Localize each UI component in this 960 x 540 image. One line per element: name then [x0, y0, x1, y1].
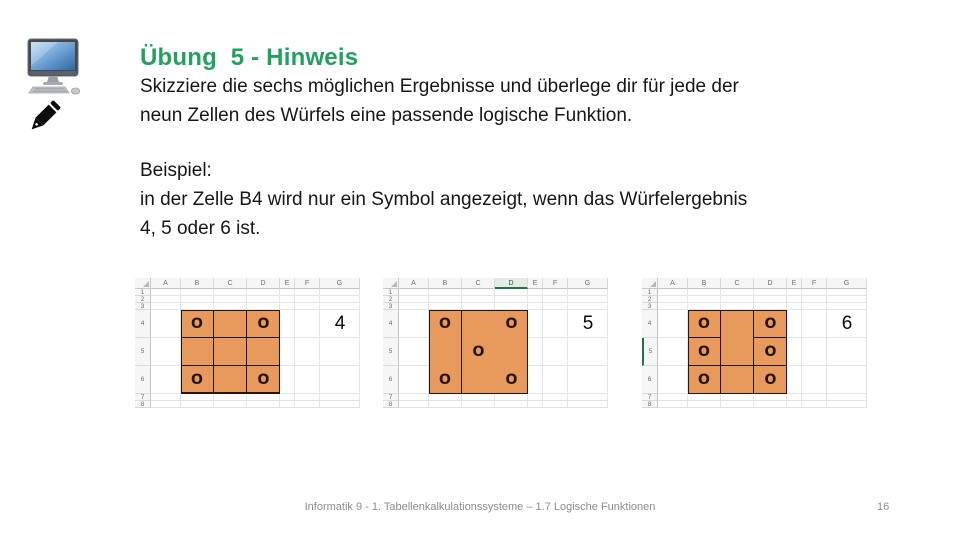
cell-B3: [429, 303, 462, 310]
row-header-3: 3: [383, 303, 399, 310]
row-header-8: 8: [135, 401, 151, 408]
select-all-corner: [135, 278, 151, 289]
cell-G2: [568, 296, 608, 303]
cell-F3: [802, 303, 827, 310]
dice-block: OOOO: [181, 310, 280, 394]
cell-F2: [295, 296, 320, 303]
cell-B2: [429, 296, 462, 303]
cell-D3: [247, 303, 280, 310]
column-header-F: F: [543, 278, 568, 289]
column-header-D: D: [754, 278, 787, 289]
dice-cell-C6: [214, 366, 247, 394]
spreadsheet-image-dice-4: ABCDEFG12345678OOOO4: [135, 278, 360, 408]
cell-C2: [721, 296, 754, 303]
row-header-4: 4: [383, 310, 399, 338]
cell-F8: [543, 401, 568, 408]
row-header-8: 8: [383, 401, 399, 408]
cell-D3: [495, 303, 528, 310]
column-header-D: D: [495, 278, 528, 289]
cell-B2: [181, 296, 214, 303]
cell-D1: [247, 289, 280, 296]
dice-cell-B6: O: [688, 366, 721, 394]
cell-E4: [787, 310, 802, 338]
cell-D8: [495, 401, 528, 408]
dice-cell-C5: [721, 338, 754, 366]
intro-line: Skizziere die sechs möglichen Ergebnisse…: [140, 72, 739, 101]
cell-C8: [214, 401, 247, 408]
cell-A4: [658, 310, 688, 338]
cell-F4: [295, 310, 320, 338]
cell-E7: [528, 394, 543, 401]
cell-A5: [151, 338, 181, 366]
spreadsheet-image-dice-5: ABCDEFG12345678OOOOO5: [383, 278, 608, 408]
cell-G1: [320, 289, 360, 296]
cell-A4: [151, 310, 181, 338]
cell-E3: [280, 303, 295, 310]
dice-cell-B5: O: [688, 338, 721, 366]
cell-G2: [320, 296, 360, 303]
cell-A3: [399, 303, 429, 310]
cell-G2: [827, 296, 867, 303]
dice-cell-D5: [495, 338, 528, 366]
cell-D7: [247, 394, 280, 401]
page-title: Übung 5 - Hinweis: [140, 44, 358, 72]
cell-E5: [787, 338, 802, 366]
cell-B3: [688, 303, 721, 310]
row-header-6: 6: [135, 366, 151, 394]
dice-cell-C6: [721, 366, 754, 394]
computer-icon: [20, 38, 84, 101]
dice-cell-B5: [429, 338, 462, 366]
cell-C3: [462, 303, 495, 310]
cell-C1: [721, 289, 754, 296]
cell-G7: [320, 394, 360, 401]
cell-B7: [688, 394, 721, 401]
cell-G5: [320, 338, 360, 366]
cell-A2: [399, 296, 429, 303]
result-number-4: 4: [320, 310, 360, 338]
dice-cell-C5: [214, 338, 247, 366]
cell-F1: [802, 289, 827, 296]
column-header-F: F: [295, 278, 320, 289]
cell-C1: [214, 289, 247, 296]
cell-F1: [543, 289, 568, 296]
cell-G5: [568, 338, 608, 366]
example-text: Beispiel:in der Zelle B4 wird nur ein Sy…: [140, 156, 747, 243]
cell-B1: [429, 289, 462, 296]
cell-E5: [280, 338, 295, 366]
intro-text: Skizziere die sechs möglichen Ergebnisse…: [140, 72, 739, 130]
dice-cell-B4: O: [181, 310, 214, 338]
cell-A7: [658, 394, 688, 401]
column-header-A: A: [658, 278, 688, 289]
cell-G5: [827, 338, 867, 366]
cell-B3: [181, 303, 214, 310]
cell-G8: [568, 401, 608, 408]
cell-A1: [658, 289, 688, 296]
cell-A6: [658, 366, 688, 394]
result-number-5: 5: [568, 310, 608, 338]
column-header-C: C: [214, 278, 247, 289]
row-header-4: 4: [642, 310, 658, 338]
cell-D2: [247, 296, 280, 303]
cell-B1: [181, 289, 214, 296]
column-header-A: A: [399, 278, 429, 289]
column-header-G: G: [827, 278, 867, 289]
cell-E2: [787, 296, 802, 303]
page-number: 16: [877, 501, 889, 513]
cell-E2: [528, 296, 543, 303]
cell-D2: [495, 296, 528, 303]
cell-F8: [295, 401, 320, 408]
cell-D8: [247, 401, 280, 408]
pen-icon-graphic: [22, 96, 66, 140]
cell-C2: [214, 296, 247, 303]
column-header-B: B: [429, 278, 462, 289]
cell-C8: [721, 401, 754, 408]
row-header-5: 5: [642, 338, 658, 366]
cell-G6: [827, 366, 867, 394]
example-line: Beispiel:: [140, 156, 747, 185]
example-line: 4, 5 oder 6 ist.: [140, 214, 747, 243]
dice-cell-D6: O: [495, 366, 528, 394]
intro-line: neun Zellen des Würfels eine passende lo…: [140, 101, 739, 130]
column-header-E: E: [787, 278, 802, 289]
cell-F6: [802, 366, 827, 394]
cell-B7: [429, 394, 462, 401]
cell-A3: [658, 303, 688, 310]
dice-cell-B4: O: [429, 310, 462, 338]
cell-F4: [802, 310, 827, 338]
row-header-4: 4: [135, 310, 151, 338]
column-header-E: E: [280, 278, 295, 289]
dice-cell-D6: O: [247, 366, 280, 394]
row-header-5: 5: [383, 338, 399, 366]
cell-A1: [151, 289, 181, 296]
cell-B1: [688, 289, 721, 296]
cell-A8: [151, 401, 181, 408]
cell-F6: [295, 366, 320, 394]
column-header-A: A: [151, 278, 181, 289]
dice-cell-B5: [181, 338, 214, 366]
cell-G6: [320, 366, 360, 394]
row-header-5: 5: [135, 338, 151, 366]
row-header-3: 3: [642, 303, 658, 310]
cell-G3: [827, 303, 867, 310]
column-header-C: C: [721, 278, 754, 289]
cell-G7: [827, 394, 867, 401]
row-header-3: 3: [135, 303, 151, 310]
footer-text: Informatik 9 - 1. Tabellenkalkulationssy…: [0, 501, 960, 513]
cell-E7: [280, 394, 295, 401]
dice-cell-D4: O: [495, 310, 528, 338]
cell-F5: [543, 338, 568, 366]
slide: Übung 5 - Hinweis Skizziere die sechs mö…: [0, 0, 960, 540]
cell-F4: [543, 310, 568, 338]
cell-E8: [787, 401, 802, 408]
cell-G1: [827, 289, 867, 296]
cell-C7: [214, 394, 247, 401]
cell-D1: [495, 289, 528, 296]
row-header-8: 8: [642, 401, 658, 408]
select-all-corner: [383, 278, 399, 289]
dice-cell-C4: [721, 310, 754, 338]
cell-C7: [462, 394, 495, 401]
cell-D2: [754, 296, 787, 303]
spreadsheet-image-dice-6: ABCDEFG12345678OOOOOO6: [642, 278, 867, 408]
cell-G1: [568, 289, 608, 296]
cell-A5: [399, 338, 429, 366]
column-header-E: E: [528, 278, 543, 289]
cell-G7: [568, 394, 608, 401]
column-header-D: D: [247, 278, 280, 289]
cell-E1: [787, 289, 802, 296]
example-line: in der Zelle B4 wird nur ein Symbol ange…: [140, 185, 747, 214]
select-all-corner: [642, 278, 658, 289]
cell-F2: [543, 296, 568, 303]
cell-D3: [754, 303, 787, 310]
cell-A6: [151, 366, 181, 394]
cell-F7: [543, 394, 568, 401]
cell-F5: [802, 338, 827, 366]
cell-B7: [181, 394, 214, 401]
cell-B8: [688, 401, 721, 408]
cell-A4: [399, 310, 429, 338]
cell-G3: [568, 303, 608, 310]
cell-F7: [802, 394, 827, 401]
dice-cell-D5: [247, 338, 280, 366]
cell-A3: [151, 303, 181, 310]
cell-A5: [658, 338, 688, 366]
cell-A7: [151, 394, 181, 401]
cell-A7: [399, 394, 429, 401]
dice-cell-C4: [462, 310, 495, 338]
cell-G3: [320, 303, 360, 310]
cell-E4: [280, 310, 295, 338]
cell-F5: [295, 338, 320, 366]
cell-E1: [528, 289, 543, 296]
dice-cell-C4: [214, 310, 247, 338]
cell-F7: [295, 394, 320, 401]
cell-A8: [399, 401, 429, 408]
cell-A8: [658, 401, 688, 408]
column-header-B: B: [181, 278, 214, 289]
cell-C1: [462, 289, 495, 296]
cell-E3: [528, 303, 543, 310]
row-header-6: 6: [383, 366, 399, 394]
cell-E5: [528, 338, 543, 366]
column-header-B: B: [688, 278, 721, 289]
column-header-G: G: [320, 278, 360, 289]
result-number-6: 6: [827, 310, 867, 338]
cell-G8: [827, 401, 867, 408]
dice-block: OOOOOO: [688, 310, 787, 394]
dice-cell-C5: O: [462, 338, 495, 366]
cell-B8: [429, 401, 462, 408]
cell-E3: [787, 303, 802, 310]
cell-E6: [280, 366, 295, 394]
cell-E7: [787, 394, 802, 401]
dice-cell-D6: O: [754, 366, 787, 394]
cell-D8: [754, 401, 787, 408]
cell-C7: [721, 394, 754, 401]
cell-B8: [181, 401, 214, 408]
pen-icon: [22, 96, 66, 145]
column-header-G: G: [568, 278, 608, 289]
dice-cell-B4: O: [688, 310, 721, 338]
cell-A6: [399, 366, 429, 394]
dice-cell-D4: O: [247, 310, 280, 338]
cell-F3: [543, 303, 568, 310]
cell-C2: [462, 296, 495, 303]
cell-C3: [721, 303, 754, 310]
dice-cell-B6: O: [181, 366, 214, 394]
dice-cell-D5: O: [754, 338, 787, 366]
cell-A2: [151, 296, 181, 303]
row-header-6: 6: [642, 366, 658, 394]
cell-E8: [280, 401, 295, 408]
dice-block: OOOOO: [429, 310, 528, 394]
cell-E6: [528, 366, 543, 394]
cell-E2: [280, 296, 295, 303]
cell-A1: [399, 289, 429, 296]
cell-E1: [280, 289, 295, 296]
cell-E6: [787, 366, 802, 394]
cell-A2: [658, 296, 688, 303]
cell-F6: [543, 366, 568, 394]
cell-C8: [462, 401, 495, 408]
dice-cell-D4: O: [754, 310, 787, 338]
computer-icon-graphic: [20, 38, 84, 96]
dice-cell-B6: O: [429, 366, 462, 394]
cell-B2: [688, 296, 721, 303]
cell-G8: [320, 401, 360, 408]
cell-F8: [802, 401, 827, 408]
cell-D1: [754, 289, 787, 296]
cell-G6: [568, 366, 608, 394]
cell-E4: [528, 310, 543, 338]
cell-F3: [295, 303, 320, 310]
cell-C3: [214, 303, 247, 310]
cell-E8: [528, 401, 543, 408]
dice-cell-C6: [462, 366, 495, 394]
column-header-F: F: [802, 278, 827, 289]
cell-F2: [802, 296, 827, 303]
column-header-C: C: [462, 278, 495, 289]
cell-D7: [754, 394, 787, 401]
cell-D7: [495, 394, 528, 401]
cell-F1: [295, 289, 320, 296]
